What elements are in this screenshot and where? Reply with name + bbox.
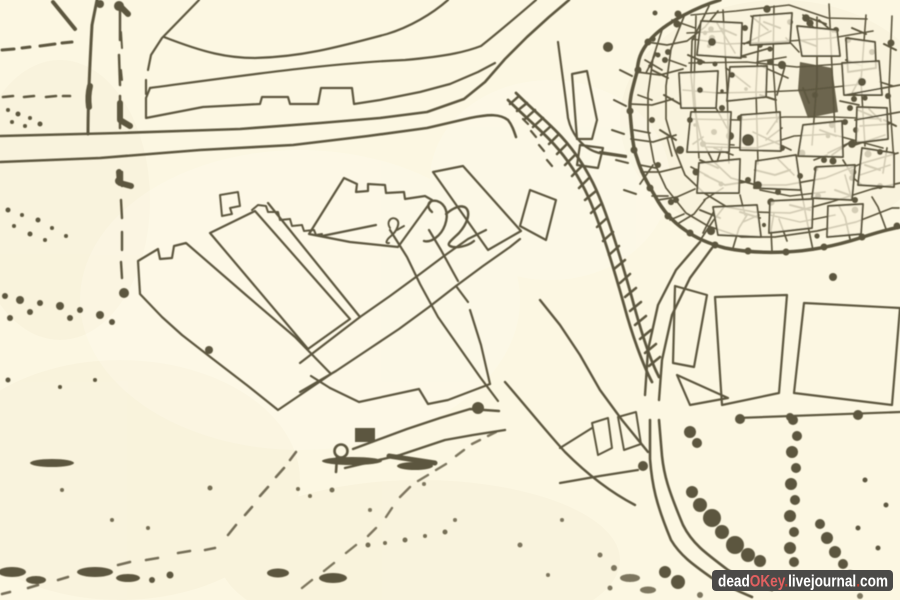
svg-text:deadOKey.livejournal.com: deadOKey.livejournal.com: [718, 573, 888, 591]
